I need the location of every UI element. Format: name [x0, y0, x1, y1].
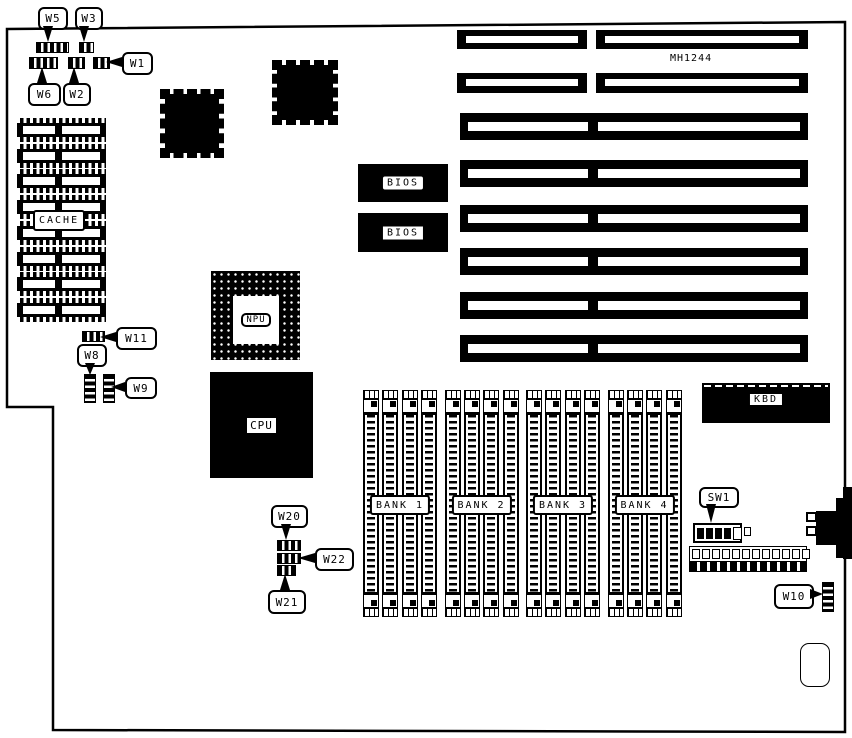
isa-slot-row5 — [460, 205, 808, 232]
bios-chip-1: BIOS — [358, 164, 448, 202]
simm-bottom-cap — [402, 608, 418, 617]
din-connector-tab-1 — [806, 512, 817, 522]
callout-w21: W21 — [268, 590, 306, 614]
isa-slot-row4 — [460, 160, 808, 187]
isa-slot-row3-contact1 — [468, 122, 588, 131]
sw1-position-3 — [715, 528, 722, 539]
simm-bottom-cap — [382, 608, 398, 617]
isa-slot-row7-contact2 — [598, 301, 800, 310]
pin-header — [689, 546, 807, 572]
bios-chip-1-label: BIOS — [382, 176, 424, 191]
isa-slot-row8 — [460, 335, 808, 362]
kbd-label: KBD — [750, 394, 782, 405]
simm-bottom-clip — [565, 594, 581, 608]
callout-w21-tail — [280, 574, 290, 590]
callout-w11: W11 — [116, 327, 157, 350]
isa-slot-row5-contact2 — [598, 214, 800, 223]
dip-pins-bottom — [17, 188, 106, 193]
header-pin-3 — [712, 549, 720, 559]
dip-slot-right — [62, 177, 100, 185]
simm-bottom-clip — [421, 594, 437, 608]
bank-label-3: BANK 3 — [533, 495, 593, 515]
simm-bottom-cap — [608, 608, 624, 617]
simm-bottom-cap — [503, 608, 519, 617]
callout-w10-tail — [810, 589, 823, 599]
cache-chip-8 — [17, 298, 106, 322]
dip-slot-left — [23, 126, 55, 134]
simm-bottom-clip — [584, 594, 600, 608]
simm-bottom-clip — [363, 594, 379, 608]
simm-bottom-clip — [627, 594, 643, 608]
simm-top-cap — [363, 390, 379, 399]
simm-bottom-clip — [646, 594, 662, 608]
isa-slot-row2-contact1 — [466, 79, 578, 86]
cache-chip-1 — [17, 118, 106, 142]
simm-bottom-clip — [503, 594, 519, 608]
simm-top-clip — [402, 399, 418, 413]
dip-pins-top — [17, 169, 106, 174]
dip-pins-top — [17, 195, 106, 200]
isa-slot-row6-contact2 — [598, 257, 800, 266]
callout-w6: W6 — [28, 83, 61, 106]
bank-label-4: BANK 4 — [614, 495, 674, 515]
board-model-label: MH1244 — [670, 53, 712, 64]
simm-top-clip — [646, 399, 662, 413]
bios-chip-2-label: BIOS — [383, 226, 423, 239]
simm-top-cap — [464, 390, 480, 399]
din-connector-tab-2 — [806, 526, 817, 536]
bank-label-1: BANK 1 — [370, 495, 430, 515]
pin-header-top-row — [692, 549, 804, 559]
simm-top-cap — [503, 390, 519, 399]
simm-top-cap — [627, 390, 643, 399]
qfp-chip-1 — [160, 89, 224, 158]
simm-top-clip — [421, 399, 437, 413]
motherboard-diagram: MH1244 BIOS BIOS NPU CPU CACHE BANK 1BAN… — [0, 0, 852, 738]
header-pin-12 — [802, 549, 810, 559]
dip-pins-bottom — [17, 137, 106, 142]
kbd-connector: KBD — [702, 383, 830, 423]
simm-bottom-clip — [666, 594, 682, 608]
dip-pins-bottom — [17, 291, 106, 296]
header-pin-6 — [742, 549, 750, 559]
dip-slot-right — [62, 255, 100, 263]
simm-top-cap — [526, 390, 542, 399]
dip-pins-bottom — [17, 317, 106, 322]
isa-slot-row4-contact1 — [468, 169, 588, 178]
isa-slot-row5-contact1 — [468, 214, 588, 223]
callout-w22-tail — [298, 553, 315, 563]
header-pin-5 — [732, 549, 740, 559]
simm-top-cap — [421, 390, 437, 399]
dip-slot-left — [23, 306, 55, 314]
header-pin-1 — [692, 549, 700, 559]
isa-slot-row7-contact1 — [468, 301, 588, 310]
isa-slot-row8-contact2 — [598, 344, 800, 353]
simm-top-cap — [646, 390, 662, 399]
callout-w2-tail — [69, 67, 79, 83]
dip-pins-bottom — [17, 266, 106, 271]
bios-chip-2: BIOS — [358, 213, 448, 252]
jumper-w8 — [84, 374, 96, 403]
callout-w9-tail — [111, 382, 125, 392]
simm-bottom-clip — [483, 594, 499, 608]
simm-top-clip — [363, 399, 379, 413]
isa-slot-row3-contact2 — [598, 122, 800, 131]
dip-slot-left — [23, 255, 55, 263]
isa-slot-row7 — [460, 292, 808, 319]
isa-slot-row2-piece1 — [457, 73, 587, 93]
dip-pins-top — [17, 118, 106, 123]
simm-bottom-cap — [445, 608, 461, 617]
simm-bottom-cap — [646, 608, 662, 617]
dip-slot-right — [62, 280, 100, 288]
cpu-chip: CPU — [210, 372, 313, 478]
simm-top-clip — [445, 399, 461, 413]
callout-w22: W22 — [315, 548, 354, 571]
simm-top-cap — [666, 390, 682, 399]
simm-bottom-clip — [608, 594, 624, 608]
npu-socket: NPU — [211, 271, 300, 360]
cache-label: CACHE — [33, 210, 85, 231]
header-pin-11 — [792, 549, 800, 559]
callout-w1: W1 — [122, 52, 153, 75]
board-outline — [0, 0, 852, 738]
dip-slot-right — [62, 152, 100, 160]
dip-slot-right — [62, 306, 100, 314]
callout-w11-tail — [100, 332, 116, 342]
cpu-label: CPU — [247, 418, 276, 433]
header-pin-10 — [782, 549, 790, 559]
simm-top-clip — [608, 399, 624, 413]
cache-chip-7 — [17, 272, 106, 296]
isa-slot-row6 — [460, 248, 808, 275]
simm-bottom-cap — [584, 608, 600, 617]
header-pin-7 — [752, 549, 760, 559]
simm-top-cap — [584, 390, 600, 399]
isa-slot-row4-contact2 — [598, 169, 800, 178]
callout-w8-tail — [85, 363, 95, 375]
simm-top-clip — [627, 399, 643, 413]
dip-slot-right — [62, 126, 100, 134]
simm-bottom-cap — [627, 608, 643, 617]
simm-bottom-cap — [483, 608, 499, 617]
simm-bottom-cap — [666, 608, 682, 617]
dip-pins-top — [17, 247, 106, 252]
callout-w10: W10 — [774, 584, 814, 609]
simm-bottom-clip — [402, 594, 418, 608]
npu-label: NPU — [241, 313, 270, 327]
dip-pins-top — [17, 272, 106, 277]
dip-slot-left — [23, 177, 55, 185]
simm-top-cap — [608, 390, 624, 399]
simm-top-cap — [565, 390, 581, 399]
simm-bottom-clip — [526, 594, 542, 608]
cache-chip-6 — [17, 247, 106, 271]
simm-top-clip — [464, 399, 480, 413]
callout-w3-tail — [79, 26, 89, 42]
isa-slot-row8-contact1 — [468, 344, 588, 353]
pin-header-pin-strip — [690, 561, 806, 571]
simm-bottom-cap — [421, 608, 437, 617]
simm-bottom-clip — [445, 594, 461, 608]
callout-w6-tail — [37, 67, 47, 83]
dip-slot-left — [23, 152, 55, 160]
jumper-w5 — [36, 42, 69, 53]
simm-top-clip — [382, 399, 398, 413]
cache-chip-3 — [17, 169, 106, 193]
simm-top-cap — [483, 390, 499, 399]
simm-bottom-clip — [464, 594, 480, 608]
simm-bottom-clip — [382, 594, 398, 608]
qfp-chip-2 — [272, 60, 338, 125]
sw1-position-6 — [744, 527, 751, 536]
callout-w1-tail — [106, 57, 122, 67]
simm-top-clip — [526, 399, 542, 413]
jumper-w20 — [277, 540, 301, 551]
simm-top-clip — [584, 399, 600, 413]
isa-slot-row2-contact2 — [605, 79, 799, 86]
isa-slot-row1-piece2 — [596, 30, 808, 49]
callout-w5-tail — [43, 26, 53, 42]
dip-pins-bottom — [17, 163, 106, 168]
header-pin-9 — [772, 549, 780, 559]
sw1-position-4 — [724, 528, 731, 539]
sw1-position-2 — [706, 528, 713, 539]
simm-bottom-clip — [545, 594, 561, 608]
callout-w2: W2 — [63, 83, 91, 106]
isa-slot-row1-contact2 — [605, 36, 799, 43]
simm-top-cap — [382, 390, 398, 399]
simm-top-clip — [483, 399, 499, 413]
jumper-w3 — [79, 42, 94, 53]
dip-pins-top — [17, 298, 106, 303]
battery-outline — [800, 643, 830, 687]
isa-slot-row3 — [460, 113, 808, 140]
simm-bottom-cap — [363, 608, 379, 617]
simm-bottom-cap — [464, 608, 480, 617]
npu-socket-center: NPU — [233, 296, 279, 344]
simm-top-clip — [565, 399, 581, 413]
din-connector-edge — [843, 487, 852, 559]
header-pin-2 — [702, 549, 710, 559]
header-pin-8 — [762, 549, 770, 559]
dip-pins-bottom — [17, 240, 106, 245]
dip-slot-left — [23, 280, 55, 288]
sw1-position-1 — [697, 528, 704, 539]
simm-top-cap — [545, 390, 561, 399]
callout-w9: W9 — [125, 377, 157, 399]
simm-top-clip — [503, 399, 519, 413]
callout-w20-tail — [281, 524, 291, 540]
header-pin-4 — [722, 549, 730, 559]
isa-slot-row1-piece1 — [457, 30, 587, 49]
simm-bottom-cap — [526, 608, 542, 617]
isa-slot-row6-contact1 — [468, 257, 588, 266]
simm-bottom-cap — [565, 608, 581, 617]
cache-chip-2 — [17, 144, 106, 168]
simm-top-clip — [545, 399, 561, 413]
simm-top-cap — [445, 390, 461, 399]
isa-slot-row2-piece2 — [596, 73, 808, 93]
callout-sw1: SW1 — [699, 487, 739, 508]
simm-top-clip — [666, 399, 682, 413]
bank-label-2: BANK 2 — [451, 495, 511, 515]
sw1-position-5 — [733, 527, 742, 540]
simm-top-cap — [402, 390, 418, 399]
jumper-w10 — [822, 582, 834, 612]
simm-bottom-cap — [545, 608, 561, 617]
callout-sw1-tail — [706, 504, 716, 523]
sw1-dip-switch — [693, 523, 742, 543]
dip-pins-top — [17, 144, 106, 149]
isa-slot-row1-contact1 — [466, 36, 578, 43]
